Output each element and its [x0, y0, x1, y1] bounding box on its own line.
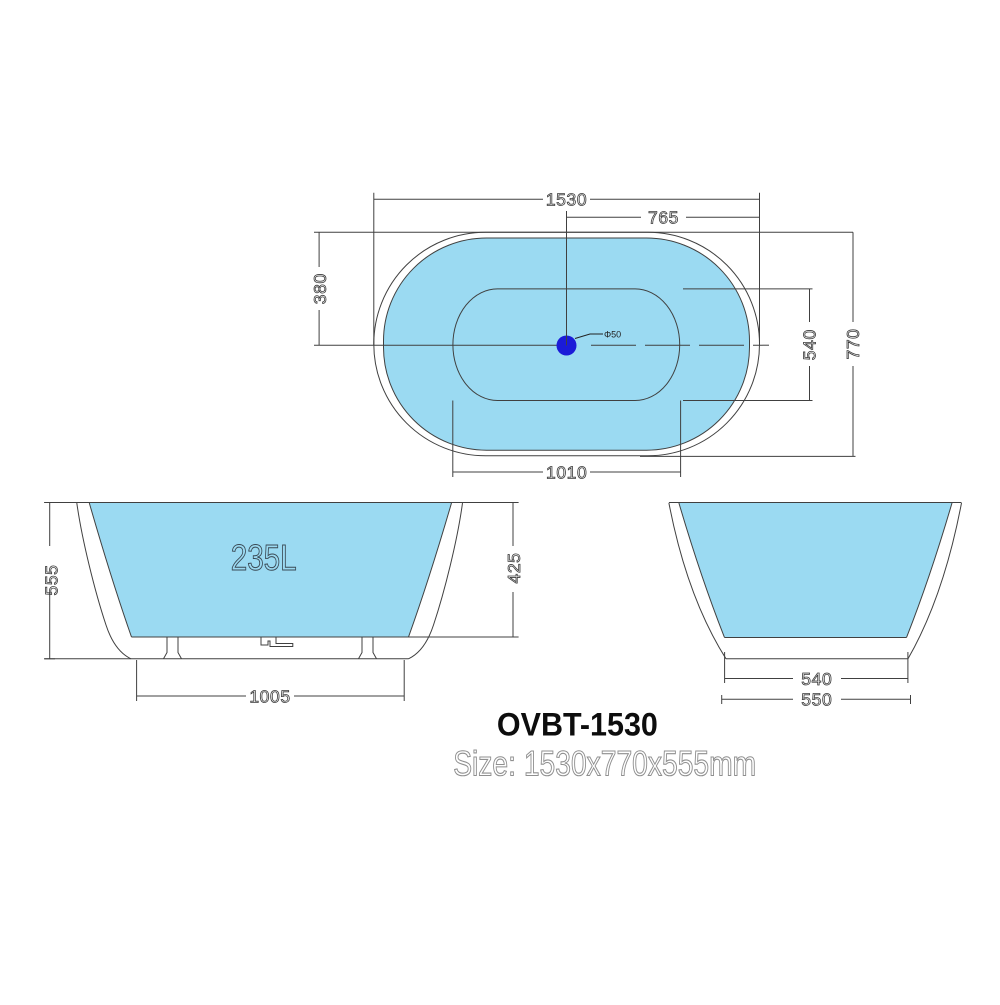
svg-text:1010: 1010: [546, 462, 587, 482]
svg-text:550: 550: [801, 690, 832, 710]
svg-text:540: 540: [801, 669, 832, 689]
svg-text:765: 765: [648, 208, 679, 228]
svg-text:235L: 235L: [231, 537, 297, 578]
svg-text:1530: 1530: [546, 190, 587, 210]
svg-text:Size: 1530x770x555mm: Size: 1530x770x555mm: [453, 745, 756, 784]
svg-text:540: 540: [800, 329, 820, 360]
svg-text:380: 380: [310, 273, 330, 304]
svg-text:1005: 1005: [249, 686, 290, 706]
svg-text:425: 425: [504, 553, 524, 584]
svg-text:OVBT-1530: OVBT-1530: [497, 707, 658, 743]
svg-text:555: 555: [42, 565, 62, 596]
svg-text:Φ50: Φ50: [604, 330, 621, 340]
svg-text:770: 770: [843, 329, 863, 360]
